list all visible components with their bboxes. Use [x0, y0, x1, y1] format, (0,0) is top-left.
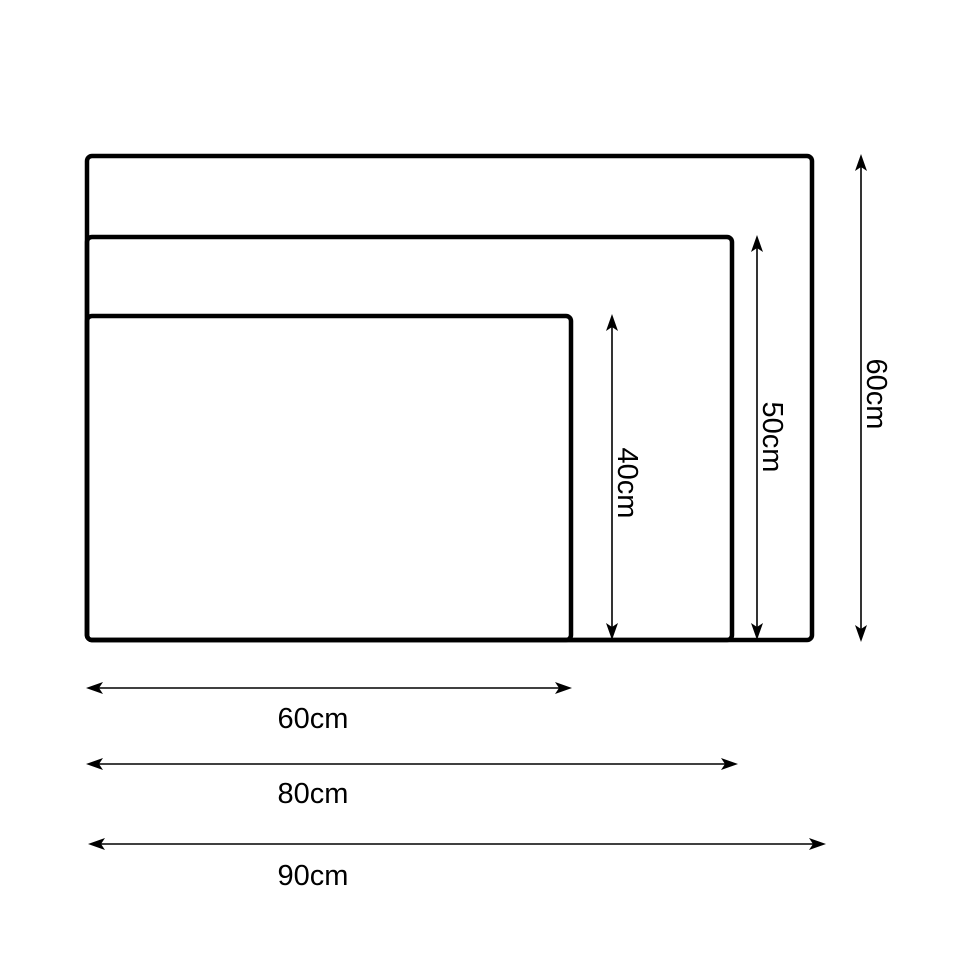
- width-label-80cm: 80cm: [278, 778, 349, 810]
- size-rect-60x40: [87, 316, 571, 640]
- width-arrow-80cm: [86, 758, 738, 770]
- size-diagram-canvas: 40cm 50cm 60cm 60cm 80cm 90cm: [0, 0, 960, 960]
- width-arrow-90cm: [88, 838, 826, 850]
- size-rect-80x50: [87, 237, 732, 640]
- height-label-50cm: 50cm: [756, 402, 788, 473]
- height-label-40cm: 40cm: [611, 448, 643, 519]
- size-diagram: 40cm 50cm 60cm 60cm 80cm 90cm: [0, 0, 960, 960]
- width-arrow-60cm: [86, 682, 572, 694]
- height-label-60cm: 60cm: [860, 359, 892, 430]
- width-label-60cm: 60cm: [278, 703, 349, 735]
- width-label-90cm: 90cm: [278, 860, 349, 892]
- size-rectangles: [87, 156, 812, 640]
- size-rect-90x60: [87, 156, 812, 640]
